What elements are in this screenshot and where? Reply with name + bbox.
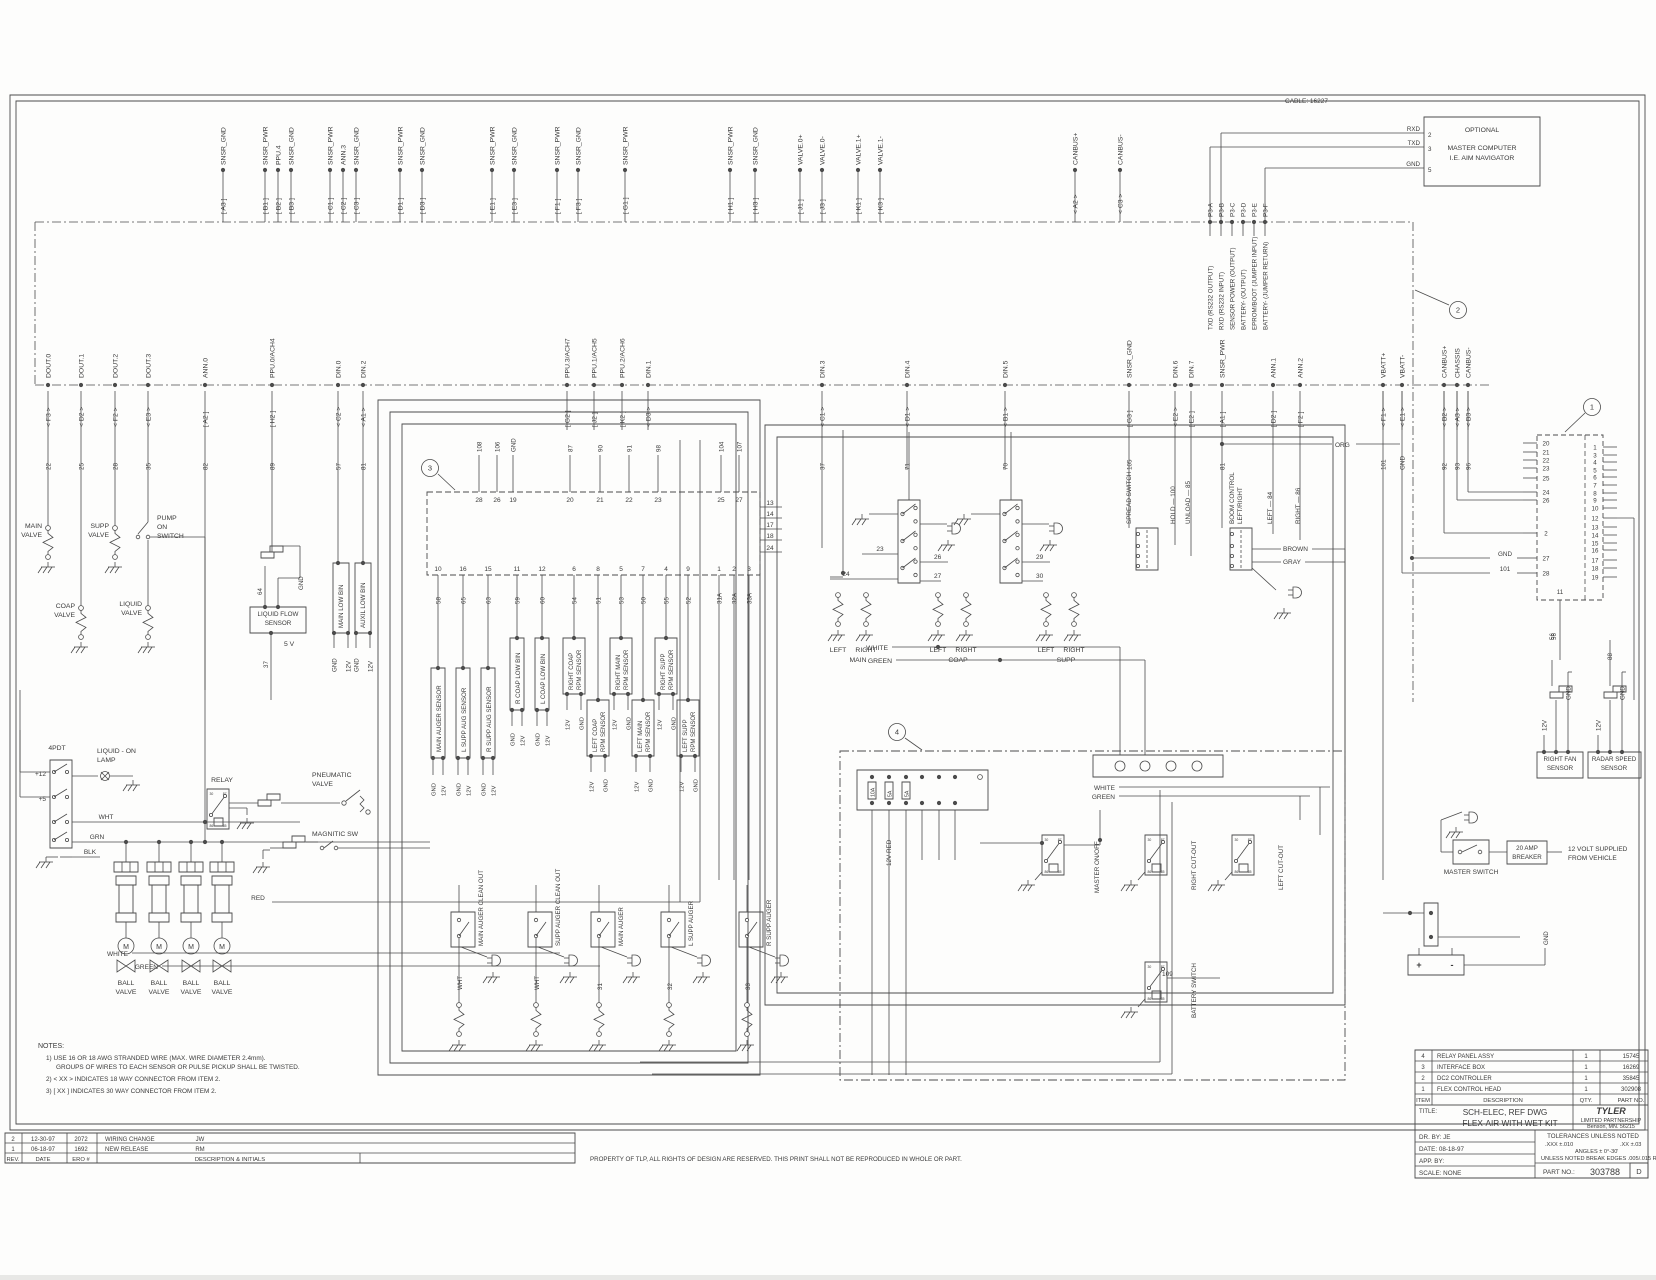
wire: [1121, 1012, 1125, 1018]
pin-dot: [623, 168, 627, 172]
valve-icon: [117, 960, 135, 972]
wire: [1456, 832, 1460, 838]
wire: [81, 647, 85, 653]
label: VALVE: [88, 532, 109, 539]
label: GND: [1543, 931, 1550, 945]
junction-dot: [904, 775, 908, 779]
pin-number: 7: [641, 566, 645, 573]
pin-dot: [276, 168, 280, 172]
wire: [959, 519, 963, 525]
wire: [1064, 635, 1068, 641]
note-line: 2) < XX > INDICATES 18 WAY CONNECTOR FRO…: [46, 1076, 221, 1083]
connector-tag: < E1 >: [1400, 407, 1407, 427]
label: 30: [1235, 838, 1239, 842]
relay-label: MASTER ON/OFF: [1094, 841, 1101, 893]
wire-number: GND: [511, 438, 518, 452]
part-desc: FLEX CONTROL HEAD: [1437, 1087, 1502, 1093]
sensor-label: MAIN AUGER SENSOR: [436, 685, 443, 752]
sensor-label: RIGHT SUPP: [661, 653, 667, 690]
wire: [903, 558, 916, 568]
label: LIQUID: [119, 601, 142, 608]
junction-dot: [870, 801, 874, 805]
bus-tap-dot: [565, 383, 569, 387]
label: LEFT: [1038, 647, 1055, 654]
terminal: [1016, 533, 1019, 536]
wire-number: 93: [1455, 462, 1462, 470]
pin-number: 6: [1593, 475, 1597, 482]
wire: [964, 519, 968, 525]
pin-dot: [354, 168, 358, 172]
label: BALL: [151, 980, 168, 987]
terminal: [534, 1032, 539, 1037]
wire-number: 30: [1036, 573, 1044, 580]
wire-number: WHT: [457, 976, 464, 990]
part-qty: 1: [1584, 1087, 1588, 1093]
callout-number: 2: [1456, 306, 1460, 315]
label: MASTER COMPUTER: [1447, 145, 1516, 152]
motor-label: M: [219, 944, 225, 951]
label: BALL: [214, 980, 231, 987]
label: PART NO.:: [1543, 1169, 1575, 1176]
rev-num: 2: [11, 1137, 15, 1143]
pin-number: 24: [1543, 490, 1550, 497]
box: [292, 836, 305, 842]
sensor-label: RIGHT MAIN: [616, 655, 622, 690]
bus-tap-dot: [1442, 383, 1446, 387]
wire: [1149, 842, 1163, 861]
wire: [828, 635, 832, 641]
terminal: [1147, 986, 1150, 989]
junction-dot: [937, 801, 941, 805]
pin-number: 25: [1543, 476, 1550, 483]
wire: [253, 867, 257, 873]
bus-tap-dot: [1003, 383, 1007, 387]
pin-dot: [263, 168, 267, 172]
label: 86: [1235, 870, 1239, 874]
horn-icon: [569, 955, 578, 966]
wire: [698, 977, 702, 983]
label: SUPP: [90, 523, 109, 530]
label: COAP: [56, 603, 76, 610]
wire-number: 57: [336, 462, 343, 470]
junction-dot: [203, 840, 207, 844]
wire: [488, 977, 492, 983]
terminal: [1147, 859, 1150, 862]
rev-initials: JW: [196, 1137, 205, 1143]
pin-number: 13: [766, 500, 774, 507]
terminal: [1016, 560, 1019, 563]
pin-number: 8: [1593, 491, 1597, 498]
valve-band: [212, 913, 232, 922]
note-line: 1) USE 16 OR 18 AWG STRANDED WIRE (MAX. …: [46, 1055, 266, 1062]
box: [1550, 692, 1563, 698]
signal-label: VALVE.1-: [878, 136, 885, 165]
box: [261, 552, 274, 558]
label: SENSOR: [265, 620, 292, 627]
label: SUPP: [1057, 657, 1076, 664]
signal-label: SNSR_PWR: [1220, 339, 1227, 378]
coil-icon: [454, 1007, 464, 1031]
wire-color-label: WHT: [99, 814, 114, 821]
wire: [1236, 842, 1250, 861]
sensor-label: R COAP LOW BIN: [515, 653, 522, 704]
part-num: 302908: [1621, 1087, 1642, 1093]
wire: [128, 785, 132, 791]
terminal: [457, 1032, 462, 1037]
wire: [41, 862, 45, 868]
terminal: [334, 846, 338, 850]
connector-tag: [ K1 ]: [856, 198, 863, 214]
label: 12V: [680, 782, 686, 792]
wire: [138, 647, 142, 653]
bus-tap-dot: [203, 383, 207, 387]
pin-number: 26: [1543, 498, 1550, 505]
pin-number: 16: [1592, 548, 1599, 555]
wire-number: GND: [1400, 456, 1407, 470]
dc2-controller-box: [427, 492, 760, 575]
wire: [438, 474, 455, 490]
terminal: [136, 535, 140, 539]
component-label: PNEUMATIC: [312, 772, 352, 779]
p3-pin-description: BATTERY- (OUTPUT): [1241, 269, 1248, 330]
connector-tag: < D2 >: [79, 407, 86, 427]
pin-number: 14: [1592, 533, 1599, 540]
part-item: 4: [1421, 1054, 1425, 1060]
wire-number: 32A: [732, 592, 739, 604]
valve-header: [147, 862, 171, 872]
wire-number: WHT: [534, 976, 541, 990]
wire-number: 88: [1607, 653, 1614, 660]
signal-label: SNSR_PWR: [263, 126, 270, 165]
terminal: [1230, 564, 1233, 567]
junction-dot: [841, 571, 845, 575]
wire-number: 87: [568, 445, 575, 452]
wire-number: 71: [905, 462, 912, 470]
wire: [1018, 885, 1022, 891]
part-item: 2: [1421, 1076, 1425, 1082]
terminal: [1234, 859, 1237, 862]
p3-pin-label: P3-A: [1208, 202, 1215, 217]
wire-number: 25: [79, 462, 86, 470]
p3-pin-description: SENSOR POWER (OUTPUT): [1230, 247, 1237, 330]
signal-label: DIN.2: [361, 360, 368, 378]
label: VALVE: [181, 989, 202, 996]
signal-label: DIN.4: [905, 360, 912, 378]
wire-number: 55: [664, 597, 671, 604]
label: LIQUID FLOW: [258, 611, 299, 618]
connector-tag: [ J2 ]: [592, 412, 599, 427]
tolerance-note: .XXX ±.010: [1545, 1142, 1573, 1148]
wire: [737, 1045, 741, 1051]
box: [283, 842, 296, 848]
connector-tag: < A1 >: [361, 407, 368, 427]
connector-tag: < F1 >: [1381, 407, 1388, 427]
terminal: [978, 775, 983, 780]
signal-label: SNSR_PWR: [623, 126, 630, 165]
signal-label: PPU.1/ACH5: [592, 338, 599, 378]
drawing-border: [10, 95, 1645, 1130]
horn-icon: [702, 955, 711, 966]
wire-number: 37: [263, 661, 270, 668]
terminal: [366, 810, 370, 814]
wire: [1046, 842, 1060, 861]
part-item: 3: [1421, 1065, 1425, 1071]
pin-number: 11: [514, 566, 521, 573]
wire: [43, 567, 47, 573]
junction-dot: [870, 775, 874, 779]
wire: [565, 977, 569, 983]
terminal: [534, 918, 537, 921]
signal-label: TXD: [1408, 140, 1421, 147]
label: BALL: [118, 980, 135, 987]
terminal: [46, 526, 51, 531]
connector-tag: < B1 >: [1003, 407, 1010, 427]
signal-label: SNSR_GND: [512, 127, 519, 165]
label: VALVE: [116, 989, 137, 996]
pin-number: 10: [434, 566, 442, 573]
wire: [742, 1045, 746, 1051]
sensor-label: L COAP LOW BIN: [540, 654, 547, 704]
terminal: [65, 820, 68, 823]
wire: [110, 567, 114, 573]
wire: [966, 635, 970, 641]
terminal: [597, 918, 600, 921]
wire-number: 109: [1162, 971, 1173, 978]
terminal: [597, 1003, 602, 1008]
pin-number: 19: [509, 497, 517, 504]
connector-tag: < C2 >: [336, 407, 343, 427]
label: 5 V: [284, 641, 295, 648]
label: 85: [223, 824, 227, 828]
connector-tag: [ D3 ]: [420, 198, 427, 214]
rev-ero: 1692: [74, 1147, 88, 1153]
wire: [71, 647, 75, 653]
bus-tap-dot: [1381, 383, 1385, 387]
terminal: [1136, 554, 1139, 557]
terminal: [836, 593, 841, 598]
terminal: [79, 606, 84, 611]
terminal: [864, 622, 869, 627]
note-text: 12 VOLT SUPPLIED: [1568, 846, 1628, 853]
label: 12V: [1542, 719, 1549, 731]
terminal: [1136, 564, 1139, 567]
horn-icon: [1054, 523, 1063, 534]
rev-num: 1: [11, 1147, 15, 1153]
wire-color-label: WHITE: [866, 645, 888, 652]
terminal: [864, 593, 869, 598]
coil-icon: [143, 610, 153, 634]
junction-dot: [1429, 935, 1433, 939]
label: REV.: [7, 1157, 20, 1163]
signal-label: SNSR_GND: [753, 127, 760, 165]
terminal: [146, 606, 151, 611]
bus-tap-dot: [113, 383, 117, 387]
label: GND: [1620, 686, 1627, 700]
signal-label: SNSR_PWR: [728, 126, 735, 165]
pin-dot: [341, 168, 345, 172]
label: GND: [482, 783, 488, 796]
signal-label: SNSR_GND: [354, 127, 361, 165]
label: MAIN LOW BIN: [338, 585, 345, 628]
pin-number: 7: [1593, 483, 1597, 490]
label: 12V: [566, 720, 572, 730]
component-label: 4PDT: [48, 745, 65, 752]
part-desc: RELAY PANEL ASSY: [1437, 1054, 1494, 1060]
connector-tag: < F2 >: [113, 407, 120, 427]
wire: [1415, 290, 1449, 305]
pin-number: 22: [1543, 458, 1550, 465]
label: 12V: [613, 720, 619, 730]
label: GND: [580, 717, 586, 730]
pin-number: 4: [1593, 460, 1597, 467]
wire: [862, 519, 866, 525]
wire-number: 104: [719, 441, 726, 452]
spring-icon: [360, 796, 364, 812]
bus-tap-dot: [270, 383, 274, 387]
company-name: Benson, MN. 56215: [1587, 1124, 1635, 1130]
label: GND: [354, 658, 361, 672]
p3-pin-label: P3-F: [1263, 203, 1270, 217]
terminal-screw: [1192, 761, 1202, 771]
terminal: [1072, 593, 1077, 598]
wire: [570, 977, 574, 983]
coil-icon: [933, 597, 943, 621]
junction-dot: [920, 801, 924, 805]
pin-number: 27: [1543, 556, 1550, 563]
wire-color-label: GREEN: [868, 658, 892, 665]
revision-table: [5, 1133, 575, 1163]
connector-tag: < D1 >: [905, 407, 912, 427]
wire-number: 60: [540, 597, 547, 604]
wire: [659, 1045, 663, 1051]
terminal: [457, 1003, 462, 1008]
wire: [105, 567, 109, 573]
valve-band: [212, 876, 232, 885]
component-label: LEFT/RIGHT: [1237, 487, 1244, 524]
connector-tag: [ G3 ]: [1127, 410, 1134, 427]
coil-icon: [833, 597, 843, 621]
signal-label: DIN.1: [646, 360, 653, 378]
wire: [1213, 885, 1217, 891]
terminal: [1016, 547, 1019, 550]
motor-label: M: [156, 944, 162, 951]
pin-number: 9: [686, 566, 690, 573]
label: 20 AMP: [1516, 845, 1538, 852]
wire: [143, 647, 147, 653]
wire: [933, 635, 937, 641]
valve-body: [119, 885, 133, 913]
wire-label: GND: [1498, 551, 1512, 558]
label: 87: [1248, 838, 1252, 842]
wire-number: 50: [641, 597, 648, 604]
pin-dot: [576, 168, 580, 172]
terminal: [1478, 850, 1482, 854]
wire-number: 63: [486, 597, 493, 604]
wire: [211, 796, 225, 815]
pin-number: 28: [1543, 571, 1550, 578]
label: SWITCH: [157, 533, 184, 540]
pin-number: 5: [619, 566, 623, 573]
connector-tag: < B2 >: [1442, 407, 1449, 427]
terminal: [667, 918, 670, 921]
valve-band: [116, 876, 136, 885]
signal-label: RXD: [1407, 126, 1421, 133]
terminal: [745, 1003, 750, 1008]
junction-dot: [953, 775, 957, 779]
callout-number: 1: [1590, 403, 1594, 412]
wire-number: 56: [1549, 633, 1556, 640]
terminal: [936, 593, 941, 598]
terminal: [836, 622, 841, 627]
sensor-label: RPM SENSOR: [646, 711, 652, 752]
terminal: [1230, 544, 1233, 547]
auger-switch-box: [528, 912, 552, 947]
wire: [536, 1045, 540, 1051]
wire: [1040, 545, 1044, 551]
wire: [148, 647, 152, 653]
wire: [258, 867, 262, 873]
coil-icon: [43, 530, 53, 554]
callout-number: 3: [428, 464, 432, 473]
part-desc: INTERFACE BOX: [1437, 1065, 1485, 1071]
label: ON: [157, 524, 167, 531]
terminal: [1136, 532, 1139, 535]
note-line: GROUPS OF WIRES TO EACH SENSOR OR PULSE …: [56, 1064, 300, 1071]
wire: [459, 1045, 463, 1051]
wire-number: 31: [597, 983, 604, 990]
horn-icon: [780, 955, 789, 966]
signal-label: DIN.0: [336, 360, 343, 378]
sensor-label: LEFT SUPP: [683, 719, 689, 752]
label: 12V: [346, 660, 353, 672]
signal-label: SNSR_GND: [420, 127, 427, 165]
terminal: [1016, 573, 1019, 576]
sensor-label: L SUPP AUG SENSOR: [461, 687, 468, 752]
drawing-title: FLEX-AIR WITH WET KIT: [1462, 1119, 1557, 1128]
connector-tag: < E2 >: [1173, 407, 1180, 427]
pin-dot: [753, 168, 757, 172]
motor-label: M: [123, 944, 129, 951]
label: 12V: [492, 786, 498, 796]
label: 85: [1248, 870, 1252, 874]
wire: [693, 977, 697, 983]
wire-number: 27: [934, 573, 942, 580]
label: RIGHT FAN: [1544, 756, 1577, 763]
terminal-screw: [1166, 761, 1176, 771]
label: ITEM: [1416, 1098, 1430, 1104]
bus-tap-dot: [1173, 383, 1177, 387]
valve-band: [181, 913, 201, 922]
wire: [671, 947, 697, 957]
wire-number: 89: [270, 462, 277, 470]
component-label: LIQUID - ON: [97, 748, 136, 755]
pin-number: 2: [1428, 132, 1432, 139]
bus-tap-dot: [620, 383, 624, 387]
wire-color-label: GREEN: [1092, 794, 1115, 801]
connector-tag: [ H2 ]: [270, 411, 277, 427]
connector-tag: [ E3 ]: [512, 198, 519, 214]
terminal: [1136, 544, 1139, 547]
valve-band: [181, 876, 201, 885]
wire: [1462, 845, 1477, 852]
label: RIGHT: [1063, 647, 1084, 654]
bus-tap-dot: [1400, 383, 1404, 387]
terminal: [1044, 859, 1047, 862]
pin-number: 6: [572, 566, 576, 573]
wire: [1225, 872, 1232, 880]
rev-date: 06-18-97: [31, 1147, 56, 1153]
wire: [346, 790, 360, 801]
